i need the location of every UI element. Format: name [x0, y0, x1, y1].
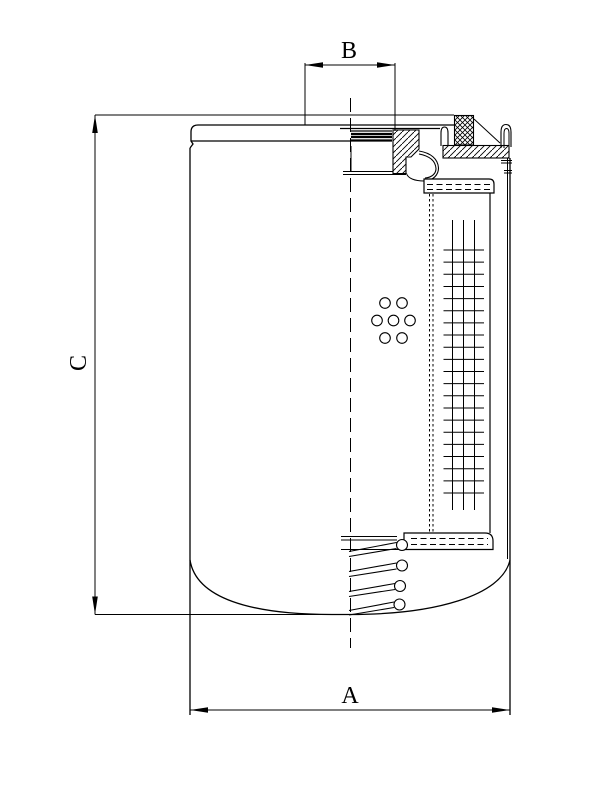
dim-c-arrow-top	[92, 115, 98, 133]
filter-element	[341, 179, 494, 550]
dimension-c-label: C	[66, 355, 92, 371]
dim-a-arrow-left	[190, 707, 208, 713]
spring-coil-end	[397, 560, 408, 571]
spring-wire	[349, 602, 394, 611]
perforation-hole	[397, 298, 408, 309]
perforation-hole	[372, 315, 383, 326]
retainer-hook-left	[441, 127, 448, 146]
tapping-plate-flange	[443, 146, 509, 159]
dimension-a-label: A	[341, 683, 359, 709]
dim-b-arrow-left	[305, 62, 323, 68]
dimension-b-label: B	[341, 38, 357, 64]
spring-coil-end	[397, 540, 408, 551]
dim-b-arrow-right	[377, 62, 395, 68]
dim-c-arrow-bottom	[92, 597, 98, 615]
spring-coil-end	[395, 581, 406, 592]
element-bottom-endcap	[404, 533, 493, 550]
perforation-hole	[397, 333, 408, 344]
perforation-hole	[380, 298, 391, 309]
dimension-a: A	[190, 683, 510, 713]
dimension-b: B	[305, 38, 395, 131]
seat-edge	[407, 174, 425, 182]
perforation-hole	[380, 333, 391, 344]
spring-coil	[349, 540, 408, 616]
perforation-hole	[405, 315, 416, 326]
drawing-page: B C A	[0, 0, 612, 792]
spring-coil-end	[394, 599, 405, 610]
perforation-hole	[388, 315, 399, 326]
pleated-media-grid	[444, 220, 485, 510]
tube-perforations	[372, 298, 416, 344]
thread-boss-section	[393, 130, 419, 174]
dim-a-arrow-right	[492, 707, 510, 713]
technical-drawing: B C A	[0, 0, 612, 792]
element-top-endcap	[424, 179, 494, 193]
cap-profile-diagonal	[474, 119, 500, 143]
seal-gasket	[455, 116, 474, 146]
